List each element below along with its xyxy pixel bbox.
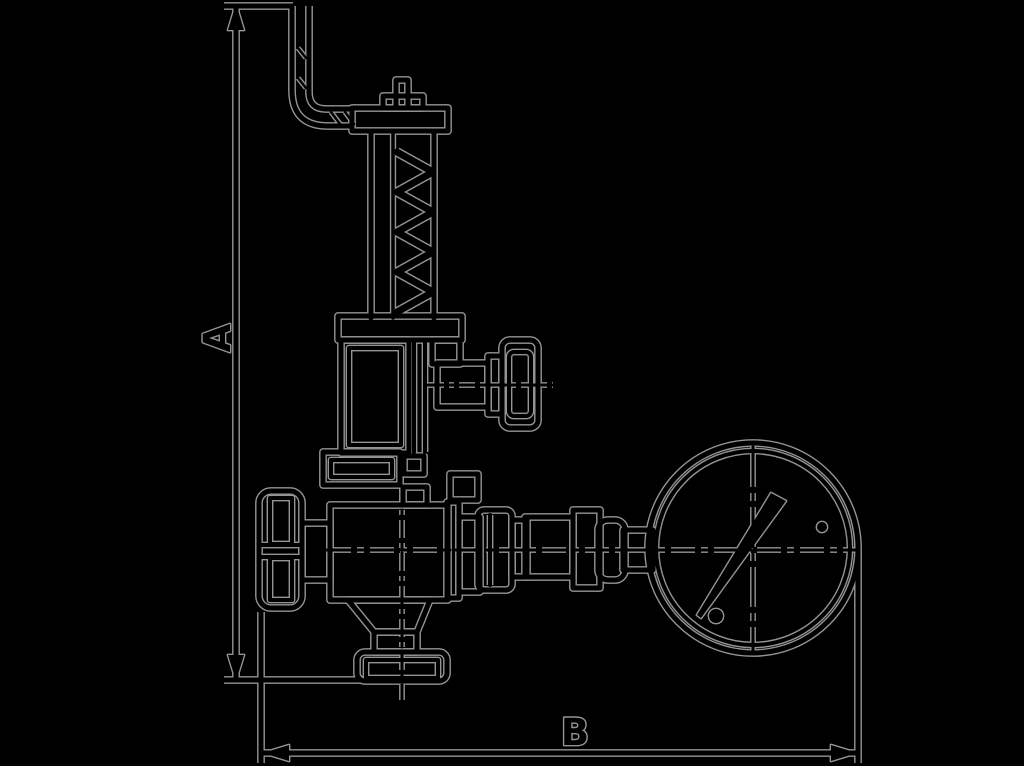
valve-technical-drawing: AB xyxy=(0,0,1024,766)
valve-assembly xyxy=(259,6,858,700)
union-nut xyxy=(525,517,573,577)
tee-block xyxy=(450,474,478,500)
discharge-bracket-pipe xyxy=(292,6,354,126)
valve-body xyxy=(330,487,480,700)
cap-plate xyxy=(352,108,448,131)
bracket-pipe-inner-wall xyxy=(309,6,352,109)
housing-inner xyxy=(349,348,401,445)
dimension-B: B xyxy=(261,550,858,763)
lower-housing xyxy=(341,340,460,453)
gauge-pin-dot xyxy=(817,522,827,532)
handwheel-rim xyxy=(259,491,302,608)
mid-flange-inner xyxy=(331,460,392,477)
dimension-b-label: B xyxy=(561,711,589,754)
drawing-canvas: AB xyxy=(0,0,1024,766)
handwheel-rim xyxy=(259,491,302,608)
gauge-needle xyxy=(697,493,786,618)
handwheel-panel-bottom xyxy=(270,558,292,600)
housing-inner xyxy=(349,348,401,445)
arrowhead-right-icon xyxy=(831,745,857,761)
spring-coils xyxy=(397,152,433,312)
gauge-pin-dot xyxy=(709,609,723,623)
mid-flange-block xyxy=(404,456,424,474)
bonnet-cap xyxy=(352,80,448,131)
dimension-a-label: A xyxy=(196,323,239,352)
handwheel-stem xyxy=(302,523,330,580)
body-taper xyxy=(348,600,430,632)
spring-bonnet xyxy=(338,131,462,340)
handwheel-stem xyxy=(302,523,330,580)
arrowhead-left-icon xyxy=(263,745,289,761)
union-nut xyxy=(525,517,573,577)
bracket-pipe-inner-wall xyxy=(309,6,352,109)
handwheel-panel-top xyxy=(270,498,292,544)
